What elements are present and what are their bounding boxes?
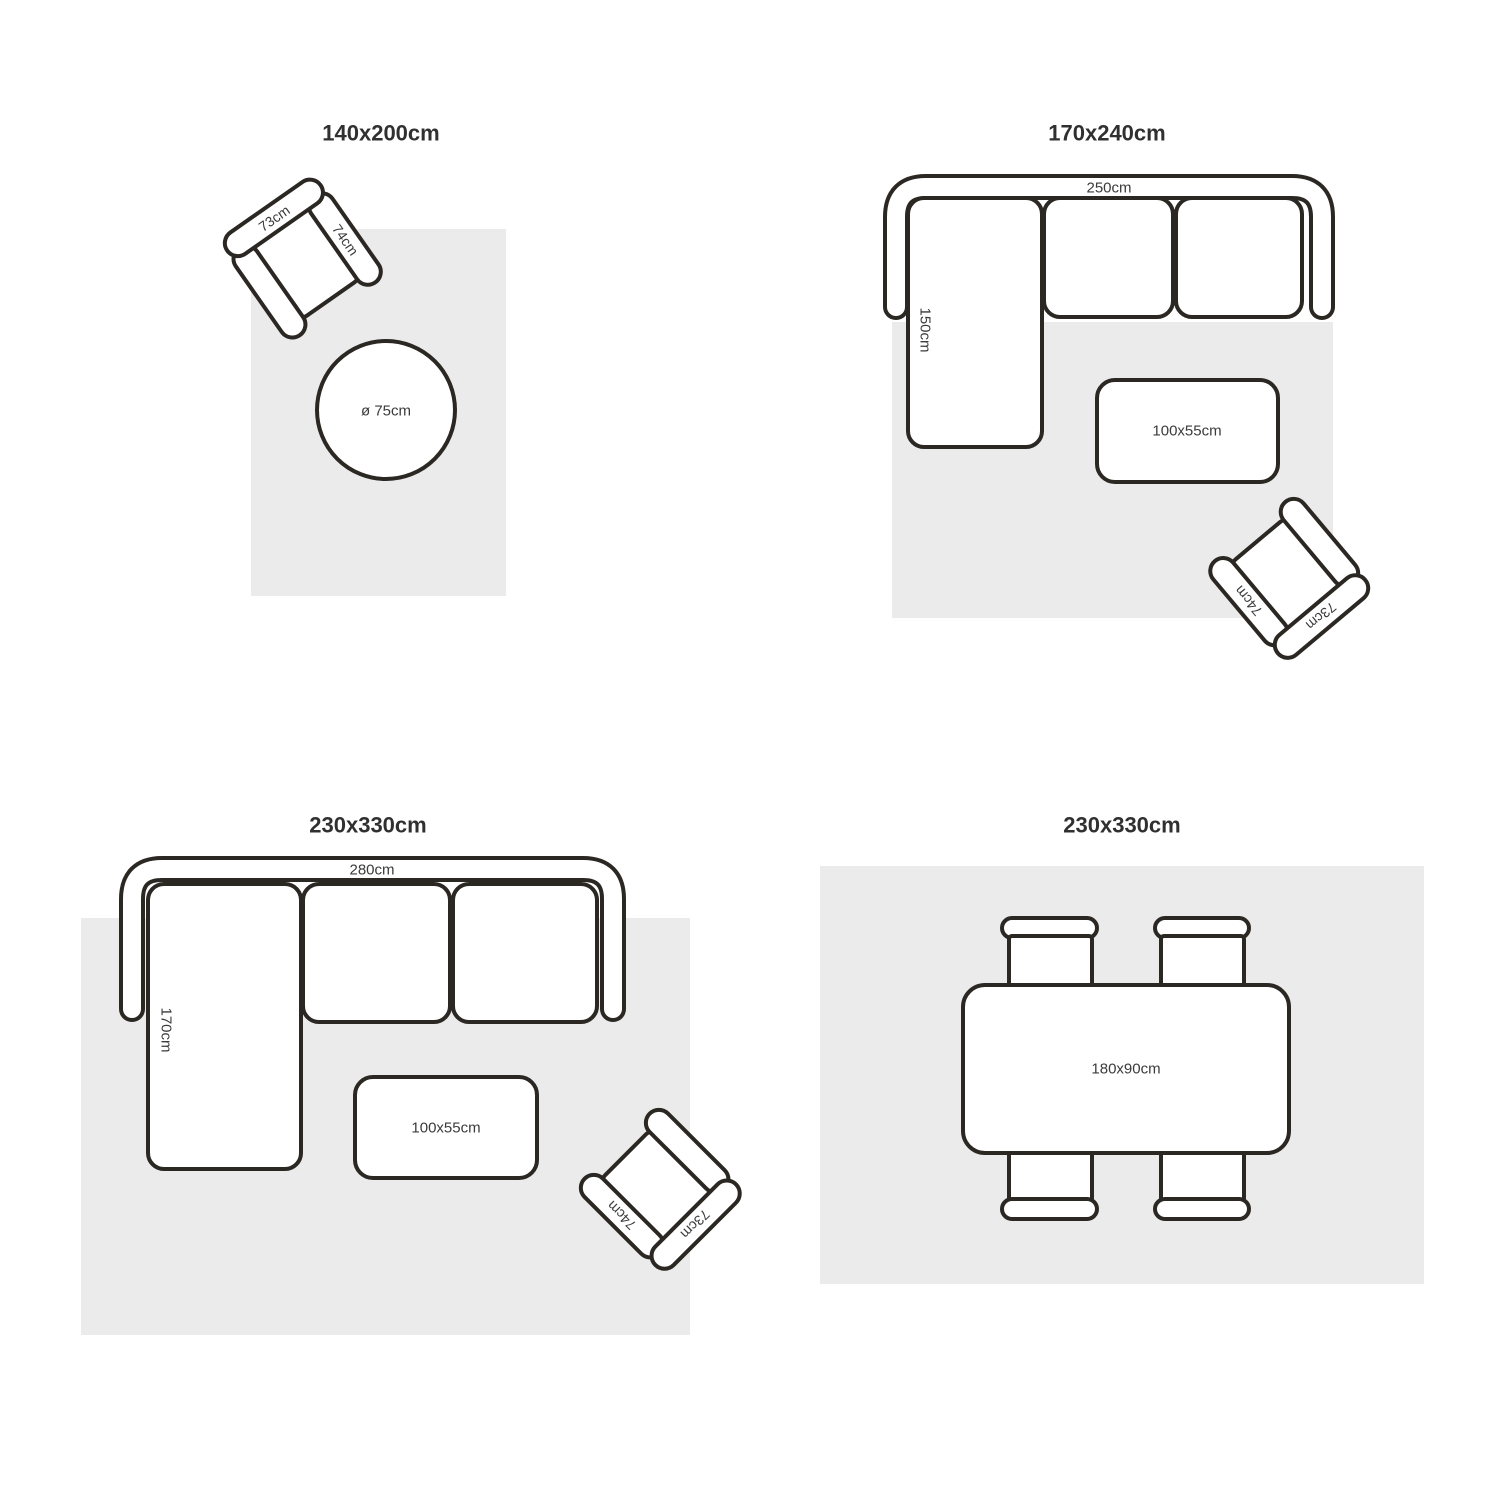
diagram-rug-140x200: 140x200cm 73cm 74cm ø 75cm	[218, 121, 506, 597]
diagram-rug-230x330-dining: 230x330cm 180x90cm	[820, 813, 1424, 1285]
rug-size-title: 230x330cm	[1063, 813, 1180, 838]
sofa-seat-cushion	[1176, 198, 1302, 317]
rug-size-guide: 140x200cm 73cm 74cm ø 75cm 170x240cm	[0, 0, 1500, 1500]
coffee-table-dimension: 100x55cm	[411, 1120, 480, 1137]
sofa-width-dimension: 280cm	[349, 862, 394, 879]
dining-chair	[1155, 918, 1249, 987]
dining-chair	[1155, 1151, 1249, 1219]
coffee-table: 100x55cm	[1097, 380, 1278, 482]
dining-table: 180x90cm	[963, 985, 1289, 1153]
dining-chair-seat	[1161, 936, 1244, 987]
sofa-chaise-dimension: 150cm	[917, 307, 934, 352]
sofa-width-dimension: 250cm	[1086, 180, 1131, 197]
coffee-table: 100x55cm	[355, 1077, 537, 1178]
sofa-chaise-dimension: 170cm	[158, 1007, 175, 1052]
dining-chair-seat	[1161, 1151, 1244, 1201]
round-table: ø 75cm	[317, 341, 455, 479]
rug-size-title: 140x200cm	[322, 121, 439, 146]
rug-size-title: 230x330cm	[309, 813, 426, 838]
diagram-rug-230x330-living: 230x330cm 280cm 170cm 100x55cm 73cm 74cm	[81, 813, 747, 1336]
round-table-dimension: ø 75cm	[361, 403, 411, 420]
sofa-seat-cushion	[453, 884, 597, 1022]
dining-chair-seat	[1009, 936, 1092, 987]
dining-chair-seat	[1009, 1151, 1092, 1201]
rug-size-title: 170x240cm	[1048, 121, 1165, 146]
dining-chair	[1002, 918, 1097, 987]
dining-chair	[1002, 1151, 1097, 1219]
coffee-table-dimension: 100x55cm	[1152, 423, 1221, 440]
sofa-seat-cushion	[1044, 198, 1173, 317]
sofa-seat-cushion	[303, 884, 450, 1022]
dining-chair-backrest	[1002, 1199, 1097, 1219]
dining-table-dimension: 180x90cm	[1091, 1061, 1160, 1078]
dining-chair-backrest	[1155, 1199, 1249, 1219]
diagram-rug-170x240: 170x240cm 250cm 150cm 100x55cm 73cm 74cm	[892, 121, 1375, 665]
rug-size-guide-canvas: 140x200cm 73cm 74cm ø 75cm 170x240cm	[0, 0, 1500, 1500]
